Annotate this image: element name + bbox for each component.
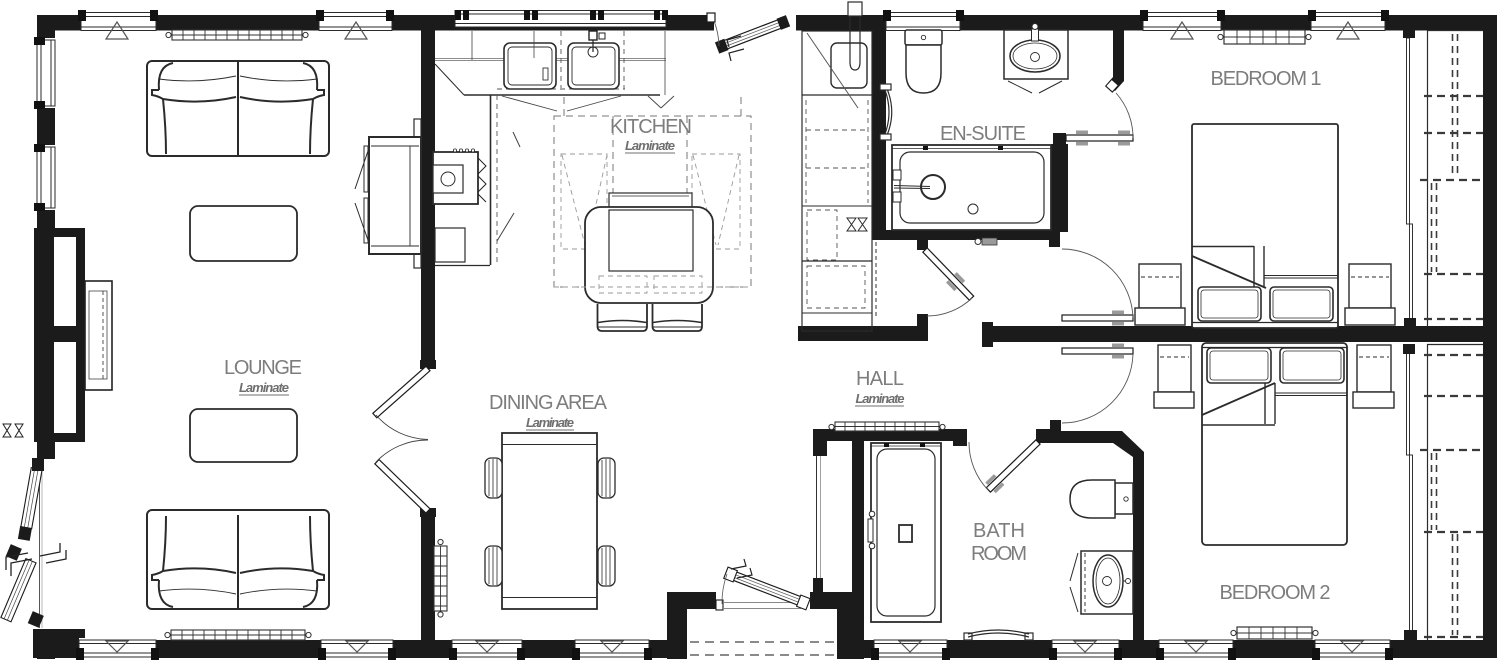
svg-text:EN-SUITE: EN-SUITE xyxy=(940,123,1026,145)
svg-text:ROOM: ROOM xyxy=(971,543,1027,565)
svg-text:HALL: HALL xyxy=(856,368,904,390)
svg-text:DINING AREA: DINING AREA xyxy=(489,392,608,414)
svg-text:BEDROOM 1: BEDROOM 1 xyxy=(1211,68,1322,90)
svg-text:Laminate: Laminate xyxy=(856,391,905,406)
svg-text:Laminate: Laminate xyxy=(625,138,675,153)
svg-text:Laminate: Laminate xyxy=(239,380,289,395)
svg-text:Laminate: Laminate xyxy=(526,415,574,430)
svg-text:LOUNGE: LOUNGE xyxy=(224,357,302,379)
svg-text:BATH: BATH xyxy=(973,520,1025,542)
svg-text:KITCHEN: KITCHEN xyxy=(610,116,692,138)
svg-text:BEDROOM 2: BEDROOM 2 xyxy=(1220,582,1331,604)
